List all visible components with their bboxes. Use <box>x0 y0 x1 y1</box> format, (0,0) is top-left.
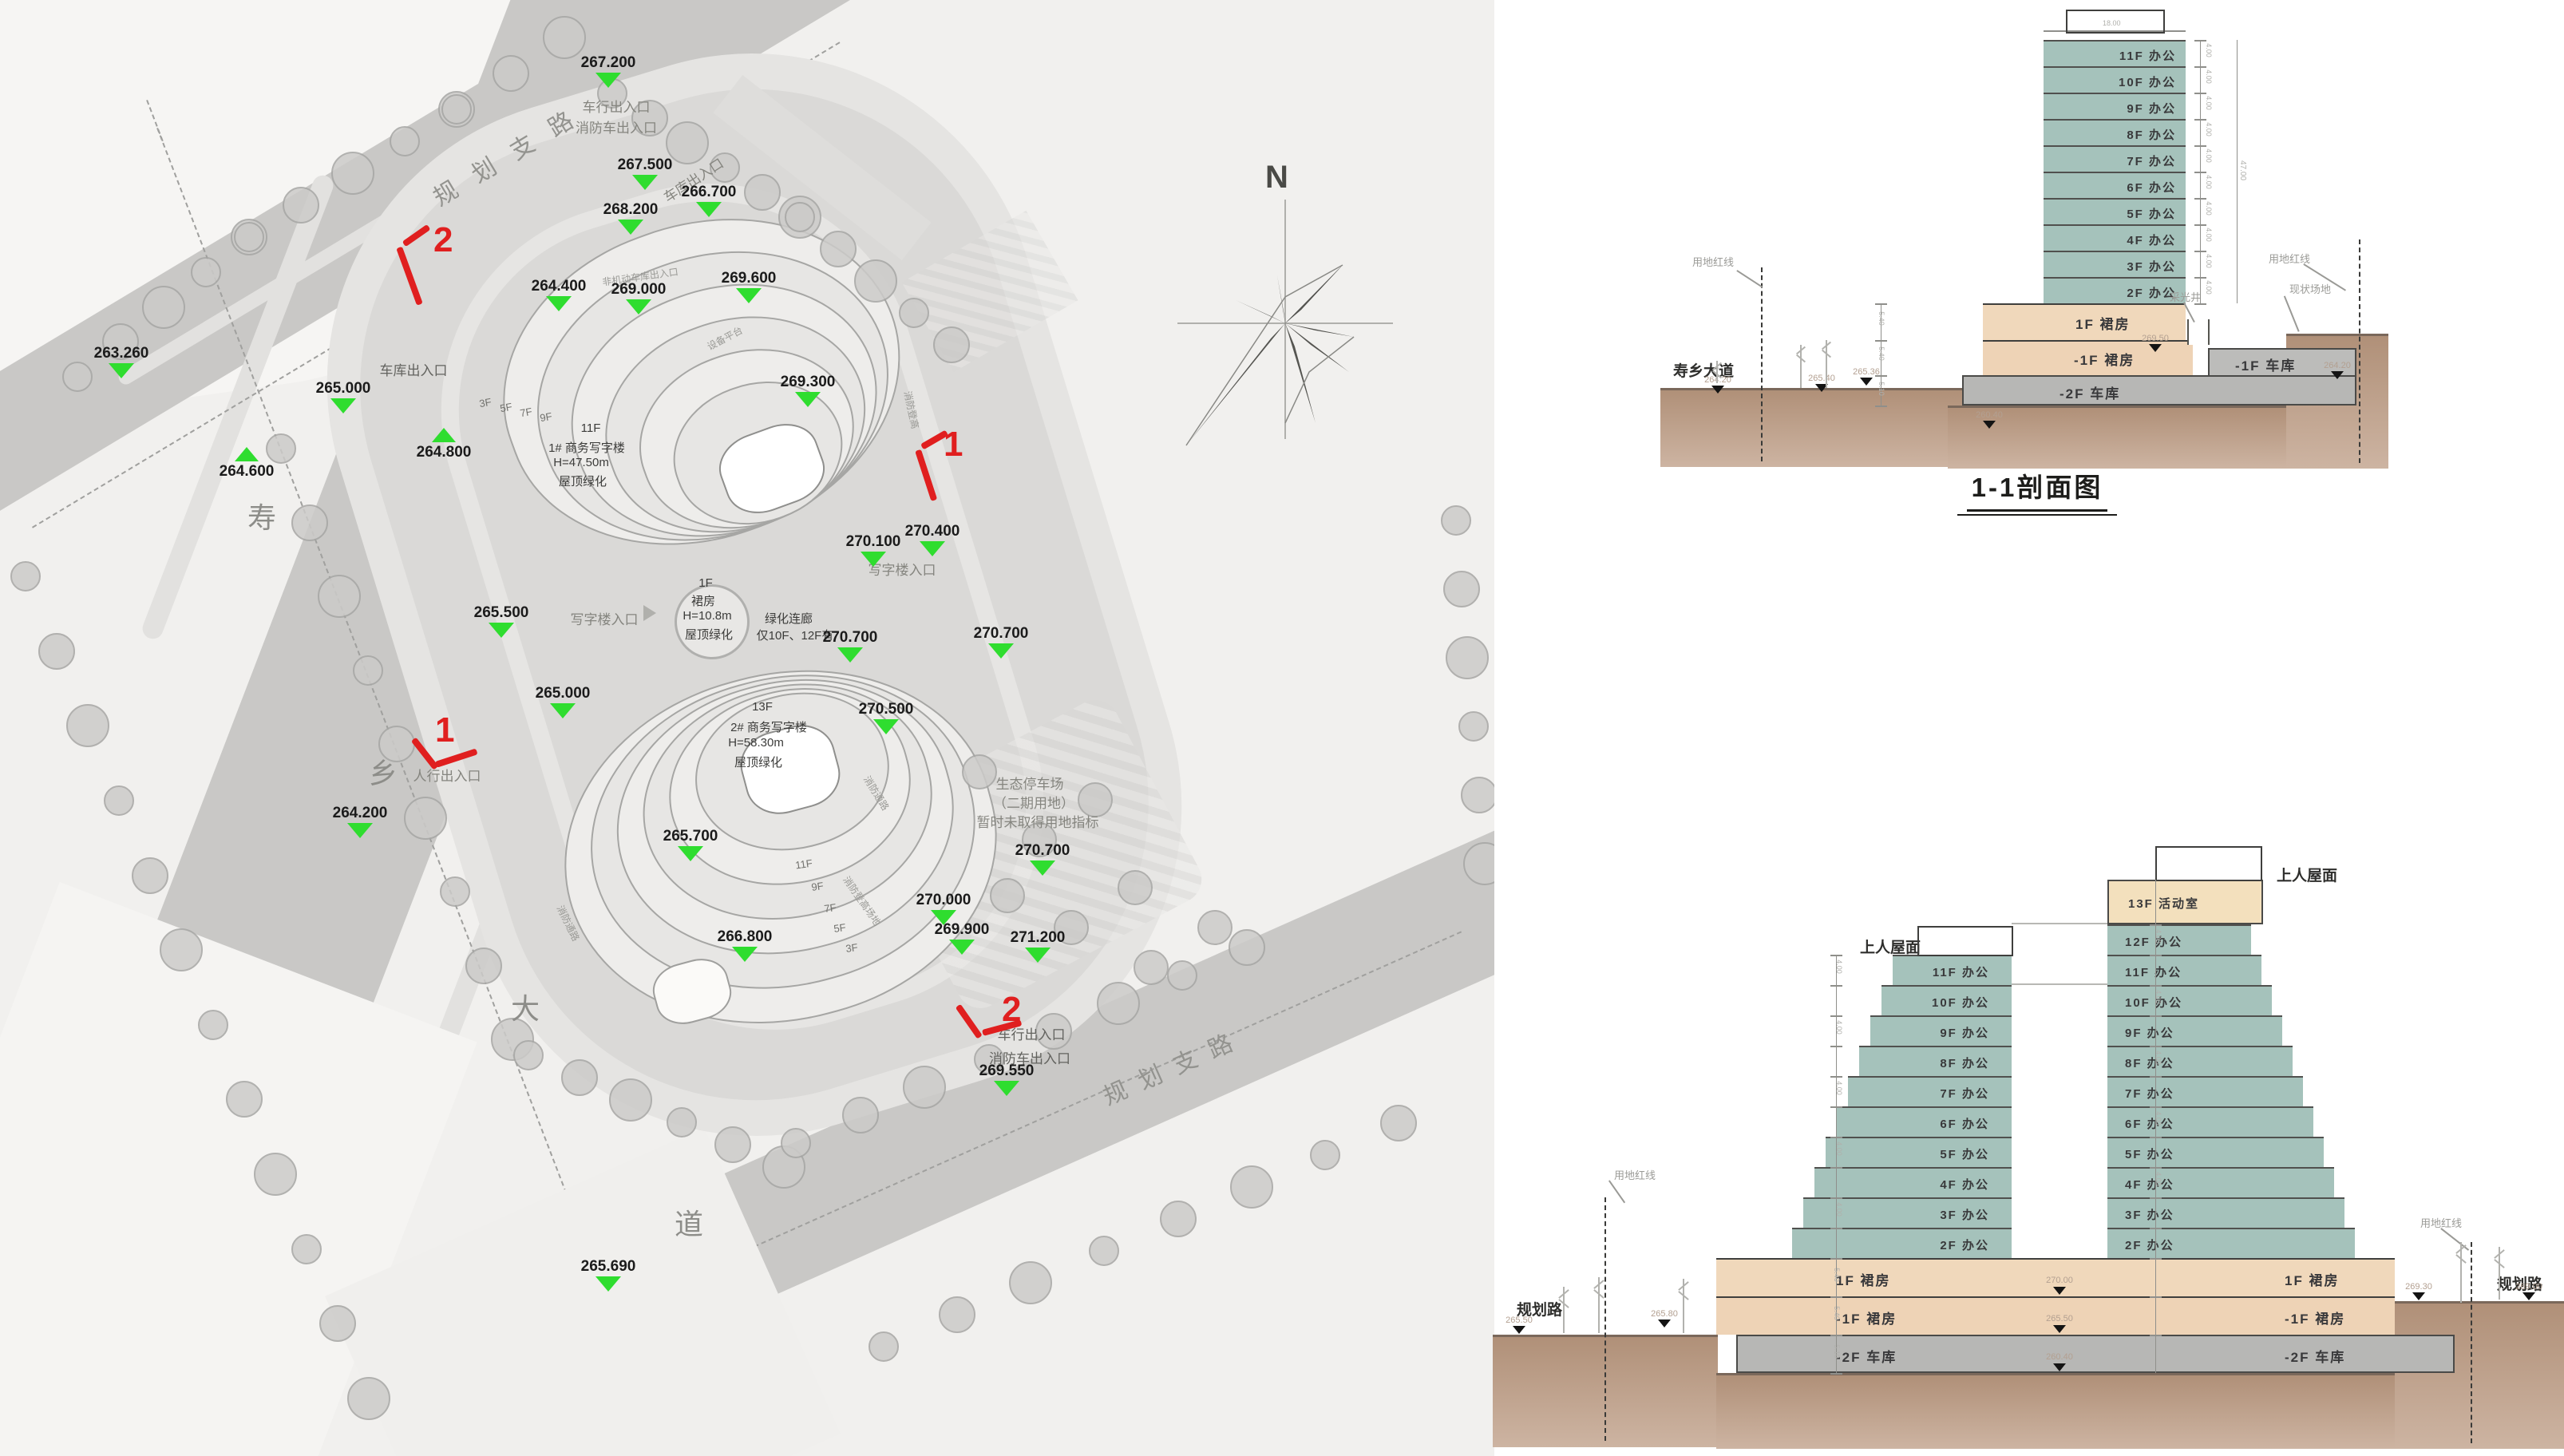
right-tower-floor: 6F 办公 <box>2107 1106 2313 1137</box>
floor-label: 5F 办公 <box>2125 1145 2174 1162</box>
dim-floor-value: 4.00 <box>2154 1172 2162 1186</box>
corridor-line <box>2012 923 2107 924</box>
dim-tick <box>1830 1137 1842 1138</box>
floor-label: 3F 办公 <box>1940 1206 1989 1223</box>
section-elevation-triangle-icon <box>2053 1363 2066 1371</box>
floor-label: 3F 办公 <box>2125 1206 2174 1223</box>
tree-branch <box>2494 1249 2505 1259</box>
floor-label: 7F 办公 <box>2125 1085 2174 1102</box>
section-elevation-value: 260.40 <box>2046 1352 2073 1362</box>
section-elevation-triangle-icon <box>2412 1292 2425 1300</box>
floor-label: 5F 办公 <box>1940 1145 1989 1162</box>
dim-tick <box>2150 985 2162 987</box>
red-line-dashed <box>2471 1242 2472 1443</box>
podium-label: 1F 裙房 <box>1836 1269 1891 1289</box>
right-tower-floor: 10F 办公 <box>2107 985 2272 1015</box>
tree-sketch <box>1683 1279 1684 1333</box>
floor-label: 10F 办公 <box>1932 994 1989 1011</box>
right-tower-floor: 3F 办公 <box>2107 1197 2344 1228</box>
dim-tick <box>2150 1076 2162 1078</box>
dim-tick <box>2150 1197 2162 1199</box>
section-elevation-value: 270.00 <box>2046 1276 2073 1285</box>
red-line-dashed <box>1604 1197 1606 1441</box>
section-2-2: 2F 办公3F 办公4F 办公5F 办公6F 办公7F 办公8F 办公9F 办公… <box>1494 798 2564 1456</box>
dim-tick <box>1830 1296 1842 1298</box>
section-2-2-drawing: 2F 办公3F 办公4F 办公5F 办公6F 办公7F 办公8F 办公9F 办公… <box>0 0 2564 1456</box>
dim-tick <box>1830 985 1842 987</box>
floor-label: 2F 办公 <box>1940 1236 1989 1253</box>
floor-label: 2F 办公 <box>2125 1236 2174 1253</box>
dim-tick <box>2150 1015 2162 1017</box>
section-elevation-triangle-icon <box>2053 1287 2066 1295</box>
section-elevation-value: 265.50 <box>2046 1314 2073 1323</box>
dim-floor-value: 4.00 <box>1835 1202 1843 1217</box>
dim-floor-value: 4.00 <box>1835 1020 1843 1035</box>
dim-tick <box>1830 1106 1842 1108</box>
left-tower-floor: 7F 办公 <box>1848 1076 2012 1106</box>
tree-sketch <box>1563 1287 1565 1333</box>
tree-sketch <box>1598 1277 1600 1333</box>
tree-branch <box>1678 1281 1689 1291</box>
podium-label: -1F 裙房 <box>2285 1308 2345 1327</box>
section-elevation-value: 269.30 <box>2405 1282 2432 1292</box>
parapet-outline <box>2155 846 2262 881</box>
left-tower-floor: 10F 办公 <box>1881 985 2012 1015</box>
earth-right <box>2395 1301 2564 1449</box>
leader-line <box>1608 1180 1625 1203</box>
dim-tick <box>1830 1167 1842 1169</box>
dim-tick <box>1830 1258 1842 1260</box>
dim-tick <box>2150 1228 2162 1229</box>
dim-tick <box>1830 1373 1842 1375</box>
dim-tick <box>2150 1258 2162 1260</box>
dim-tick <box>2150 1335 2162 1336</box>
corridor-line <box>2012 983 2107 985</box>
dim-tick <box>1830 1015 1842 1017</box>
podium-label: -1F 裙房 <box>1836 1308 1897 1327</box>
right-tower-floor: 5F 办公 <box>2107 1137 2324 1167</box>
podium-label: -2F 车库 <box>2285 1346 2345 1366</box>
parapet-outline <box>1917 926 2013 956</box>
dim-podium-value: 5.10 <box>1833 1344 1841 1359</box>
dim-floor-value: 4.00 <box>2154 990 2162 1004</box>
right-tower-floor: 12F 办公 <box>2107 924 2251 955</box>
dim-floor-value: 4.00 <box>1835 959 1843 974</box>
dim-tick <box>2150 1046 2162 1047</box>
tree-branch <box>1593 1280 1604 1289</box>
dim-tick <box>1830 1197 1842 1199</box>
dim-tick <box>2150 924 2162 926</box>
floor-label: 4F 办公 <box>1940 1176 1989 1193</box>
left-tower-floor: 4F 办公 <box>1814 1167 2012 1197</box>
dim-tick <box>2150 1167 2162 1169</box>
floor-label: 11F 办公 <box>2125 963 2182 980</box>
dim-floor-value: 4.00 <box>2154 929 2162 944</box>
section-elevation-value: 265.80 <box>1651 1309 1678 1319</box>
drawing-canvas: 规划支路规划支路寿乡大道车行出入口消防车出入口车库出入口车库出入口写字楼入口写字… <box>0 0 2564 1456</box>
floor-label: 4F 办公 <box>2125 1176 2174 1193</box>
left-tower-floor: 9F 办公 <box>1870 1015 2012 1046</box>
section-elevation-triangle-icon <box>1658 1319 1671 1327</box>
right-tower-floor: 8F 办公 <box>2107 1046 2293 1076</box>
section-elevation-value: 265.50 <box>1506 1316 1533 1325</box>
roof-label-right: 上人屋面 <box>2277 864 2337 885</box>
floor-label: 6F 办公 <box>1940 1115 1989 1132</box>
section-elevation-triangle-icon <box>2053 1325 2066 1333</box>
left-tower-floor: 2F 办公 <box>1792 1228 2012 1258</box>
section-elevation-triangle-icon <box>1513 1326 1525 1334</box>
left-tower-floor: 5F 办公 <box>1826 1137 2012 1167</box>
dim-tick <box>1830 1228 1842 1229</box>
floor-label: 9F 办公 <box>1940 1024 1989 1041</box>
floor-label: 8F 办公 <box>1940 1054 1989 1071</box>
tree-branch <box>1678 1291 1689 1300</box>
atrium-gap <box>2012 955 2107 1258</box>
dim-tick <box>2150 955 2162 956</box>
right-tower-floor: 11F 办公 <box>2107 955 2261 985</box>
dim-tick <box>1830 1335 1842 1336</box>
tree-branch <box>2494 1259 2505 1268</box>
tree-branch <box>2455 1244 2467 1254</box>
tree-branch <box>1558 1289 1569 1299</box>
top-floor-13f: 13F 活动室 <box>2107 880 2263 924</box>
red-line-label: 用地红线 <box>1614 1167 1656 1182</box>
left-tower-floor: 6F 办公 <box>1837 1106 2012 1137</box>
floor-label: 13F 活动室 <box>2128 895 2199 912</box>
tree-branch <box>2455 1254 2467 1264</box>
dim-podium-value: 5.40 <box>1833 1306 1841 1320</box>
podium-label: -2F 车库 <box>1836 1346 1897 1366</box>
dim-floor-value: 4.00 <box>1835 1141 1843 1156</box>
dim-floor-value: 4.00 <box>2154 1111 2162 1126</box>
floor-label: 7F 办公 <box>1940 1085 1989 1102</box>
dim-tick <box>2150 1296 2162 1298</box>
right-tower-floor: 9F 办公 <box>2107 1015 2282 1046</box>
floor-label: 11F 办公 <box>1933 963 1989 980</box>
roof-label-left: 上人屋面 <box>1860 936 1921 957</box>
dim-tick <box>1830 955 1842 956</box>
floor-label: 8F 办公 <box>2125 1054 2174 1071</box>
floor-label: 6F 办公 <box>2125 1115 2174 1132</box>
right-tower-floor: 2F 办公 <box>2107 1228 2355 1258</box>
tree-sketch <box>2460 1242 2462 1303</box>
right-tower-floor: 7F 办公 <box>2107 1076 2303 1106</box>
dim-chain <box>2155 880 2156 1373</box>
section-elevation-value: 269.00 <box>2515 1282 2542 1292</box>
tree-branch <box>1593 1289 1604 1299</box>
dim-tick <box>1830 1046 1842 1047</box>
dim-floor-value: 4.00 <box>2154 1050 2162 1065</box>
right-tower-floor: 4F 办公 <box>2107 1167 2334 1197</box>
section-elevation-triangle-icon <box>2522 1292 2535 1300</box>
left-tower-floor: 11F 办公 <box>1893 955 2012 985</box>
podium-label: 1F 裙房 <box>2285 1269 2340 1289</box>
dim-floor-value: 4.00 <box>1835 1081 1843 1095</box>
dim-tick <box>2150 1106 2162 1108</box>
left-tower-floor: 8F 办公 <box>1859 1046 2012 1076</box>
dim-tick <box>1830 1076 1842 1078</box>
tree-sketch <box>2499 1247 2500 1300</box>
dim-podium-value: 5.40 <box>1833 1268 1841 1282</box>
floor-label: 9F 办公 <box>2125 1024 2174 1041</box>
dim-tick <box>2150 1137 2162 1138</box>
